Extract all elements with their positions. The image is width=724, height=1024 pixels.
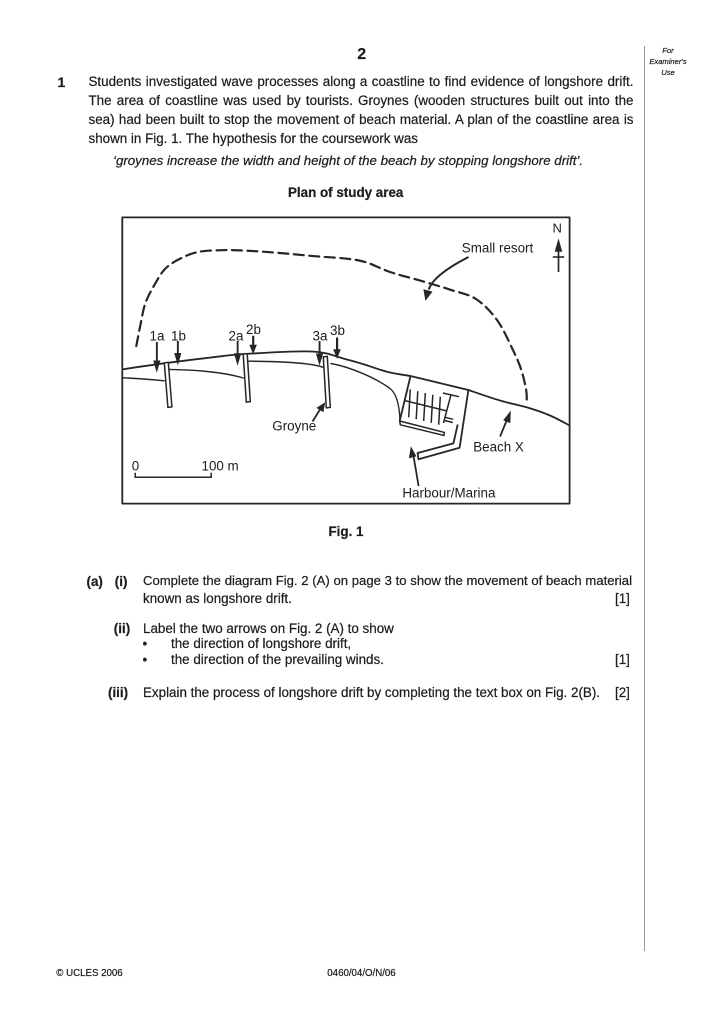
svg-text:2a: 2a (229, 328, 244, 343)
svg-text:3a: 3a (313, 328, 328, 343)
svg-text:100 m: 100 m (202, 458, 239, 473)
svg-text:2b: 2b (246, 322, 261, 337)
svg-text:0: 0 (132, 458, 139, 473)
svg-text:Beach X: Beach X (473, 440, 524, 455)
svg-text:3b: 3b (330, 323, 345, 338)
svg-text:Small resort: Small resort (462, 240, 534, 255)
svg-text:1b: 1b (171, 328, 186, 343)
svg-text:Groyne: Groyne (272, 419, 316, 434)
svg-text:Harbour/Marina: Harbour/Marina (402, 485, 496, 500)
svg-text:1a: 1a (150, 328, 165, 343)
svg-text:N: N (553, 220, 562, 235)
